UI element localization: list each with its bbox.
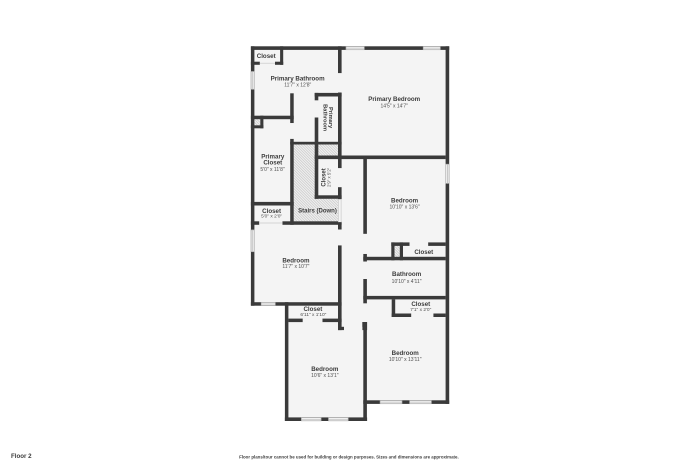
svg-text:6'11" x 1'10": 6'11" x 1'10" — [300, 312, 326, 318]
svg-text:Bathroom: Bathroom — [392, 271, 422, 278]
svg-text:10'6" x 13'1": 10'6" x 13'1" — [311, 373, 339, 379]
svg-text:Bedroom: Bedroom — [392, 350, 420, 357]
svg-text:11'7" x 10'7": 11'7" x 10'7" — [282, 264, 309, 270]
svg-text:Bedroom: Bedroom — [311, 366, 339, 373]
svg-text:Primary Bedroom: Primary Bedroom — [368, 96, 420, 103]
svg-text:Bedroom: Bedroom — [391, 197, 419, 204]
svg-text:10'10" x 4'11": 10'10" x 4'11" — [392, 279, 422, 285]
svg-text:10'10" x 13'6": 10'10" x 13'6" — [389, 204, 419, 210]
svg-text:Primary Bathroom: Primary Bathroom — [271, 76, 325, 83]
svg-text:14'5" x 14'7": 14'5" x 14'7" — [380, 104, 408, 110]
svg-text:5'0" x 2'0": 5'0" x 2'0" — [261, 214, 282, 220]
svg-text:7'1" x 2'0": 7'1" x 2'0" — [410, 307, 431, 313]
svg-text:5'0" x 11'8": 5'0" x 11'8" — [260, 167, 284, 173]
svg-text:Closet: Closet — [414, 249, 433, 256]
svg-text:Bathroom: Bathroom — [322, 104, 328, 131]
svg-text:2'9" x 5'2": 2'9" x 5'2" — [327, 167, 332, 187]
svg-text:Closet: Closet — [257, 53, 276, 60]
svg-text:10'10" x 13'11": 10'10" x 13'11" — [389, 357, 422, 363]
svg-text:11'7" x 12'8": 11'7" x 12'8" — [284, 83, 311, 89]
svg-text:Stairs (Down): Stairs (Down) — [298, 208, 337, 214]
svg-text:Closet: Closet — [263, 160, 282, 167]
svg-text:Floor plans/tour cannot be use: Floor plans/tour cannot be used for buil… — [239, 455, 459, 460]
svg-text:Floor 2: Floor 2 — [11, 453, 32, 460]
